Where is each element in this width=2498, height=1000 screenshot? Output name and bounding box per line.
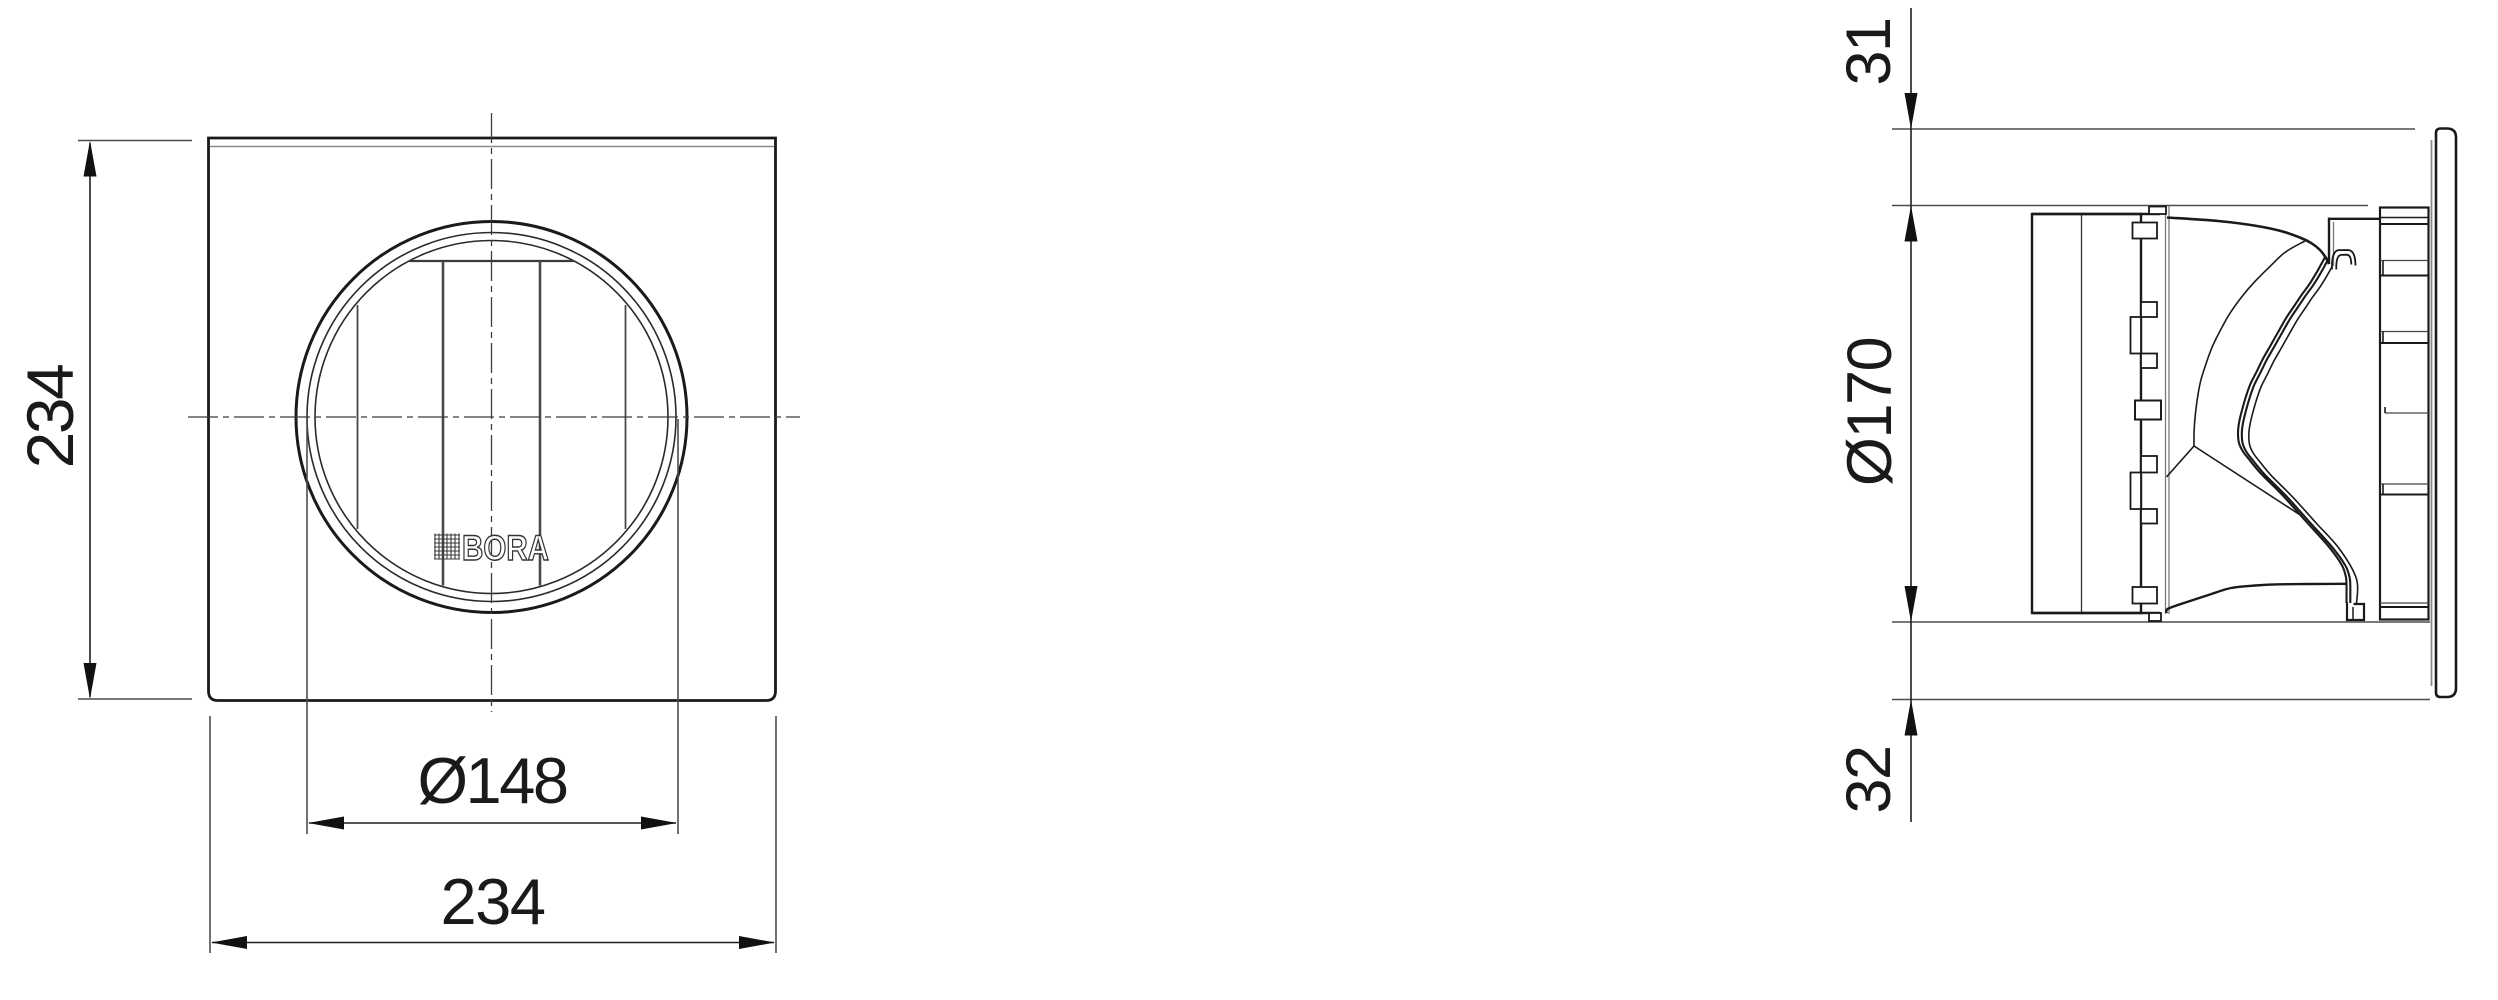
svg-text:234: 234 [441,865,545,938]
svg-text:Ø170: Ø170 [1835,338,1905,486]
svg-text:234: 234 [13,365,87,468]
svg-text:32: 32 [1834,746,1904,813]
svg-text:Ø148: Ø148 [417,744,566,817]
svg-text:BORA: BORA [462,529,549,568]
svg-text:31: 31 [1834,18,1904,85]
